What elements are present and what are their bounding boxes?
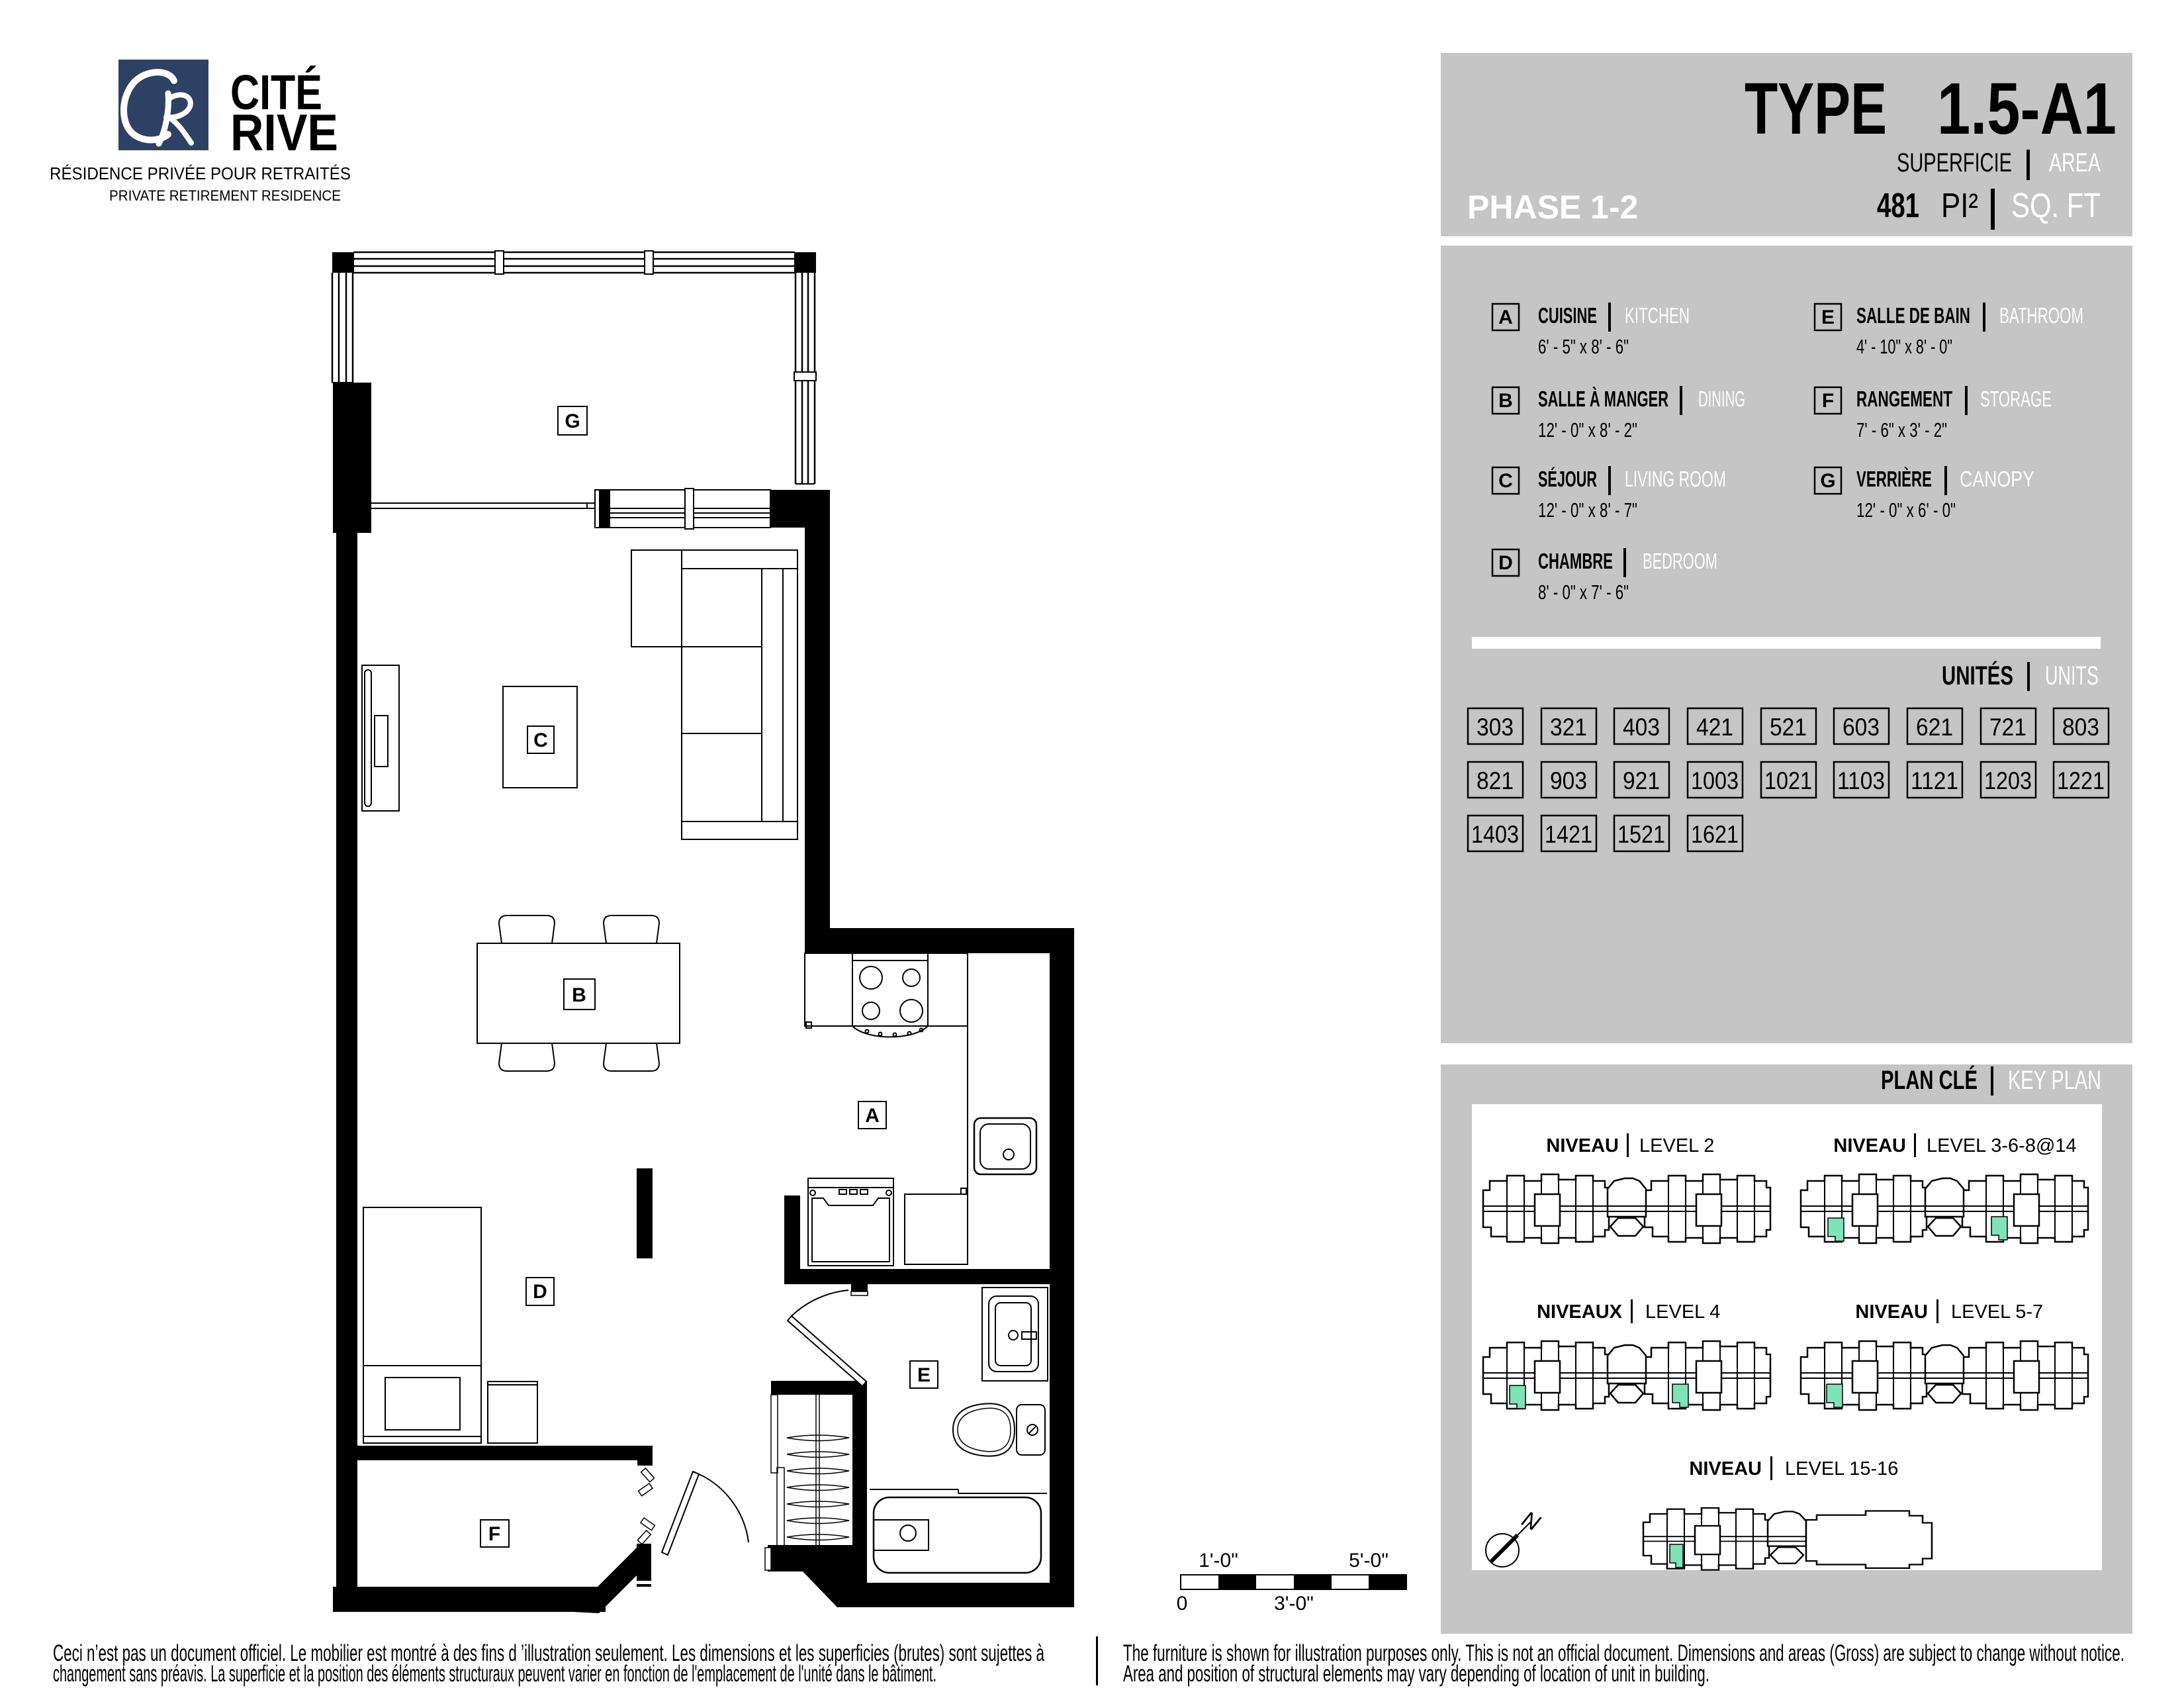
svg-text:E: E xyxy=(1821,306,1835,328)
svg-text:SALLE À MANGER: SALLE À MANGER xyxy=(1538,387,1668,411)
svg-text:A: A xyxy=(865,1105,880,1127)
svg-text:Area and position of structura: Area and position of structural elements… xyxy=(1123,1661,1709,1687)
svg-text:D: D xyxy=(1498,552,1513,574)
svg-text:1021: 1021 xyxy=(1764,767,1812,794)
svg-text:SUPERFICIE: SUPERFICIE xyxy=(1897,148,2012,177)
svg-text:12' - 0" x 6' - 0": 12' - 0" x 6' - 0" xyxy=(1856,498,1956,522)
svg-text:RANGEMENT: RANGEMENT xyxy=(1856,387,1952,411)
svg-text:1003: 1003 xyxy=(1691,767,1739,794)
svg-text:F: F xyxy=(1822,390,1834,412)
svg-text:CUISINE: CUISINE xyxy=(1538,303,1597,328)
svg-text:UNITÉS: UNITÉS xyxy=(1942,661,2013,690)
svg-text:LEVEL 4: LEVEL 4 xyxy=(1645,1301,1720,1323)
svg-text:C: C xyxy=(1498,470,1513,492)
svg-text:603: 603 xyxy=(1843,714,1880,741)
svg-text:SALLE DE BAIN: SALLE DE BAIN xyxy=(1856,303,1970,328)
svg-text:RÉSIDENCE PRIVÉE POUR RETRAITÉ: RÉSIDENCE PRIVÉE POUR RETRAITÉS xyxy=(50,164,351,183)
svg-text:1621: 1621 xyxy=(1691,821,1739,848)
svg-text:STORAGE: STORAGE xyxy=(1980,387,2052,411)
svg-text:3'-0": 3'-0" xyxy=(1274,1593,1314,1615)
svg-text:A: A xyxy=(1498,306,1513,328)
svg-text:1421: 1421 xyxy=(1545,821,1592,848)
svg-text:303: 303 xyxy=(1477,714,1514,741)
svg-text:7' - 6" x 3' - 2": 7' - 6" x 3' - 2" xyxy=(1856,418,1947,442)
svg-text:F: F xyxy=(488,1523,500,1545)
svg-text:1521: 1521 xyxy=(1617,821,1665,848)
svg-text:5'-0": 5'-0" xyxy=(1349,1550,1388,1571)
svg-text:0: 0 xyxy=(1177,1593,1188,1615)
svg-text:NIVEAUX: NIVEAUX xyxy=(1537,1301,1623,1323)
svg-text:DINING: DINING xyxy=(1698,387,1745,411)
svg-text:KEY PLAN: KEY PLAN xyxy=(2008,1066,2101,1095)
svg-text:VERRIÈRE: VERRIÈRE xyxy=(1856,467,1932,491)
svg-text:NIVEAU: NIVEAU xyxy=(1855,1301,1928,1323)
svg-text:CANOPY: CANOPY xyxy=(1960,467,2034,491)
svg-text:521: 521 xyxy=(1770,714,1807,741)
svg-text:903: 903 xyxy=(1550,767,1587,794)
svg-text:UNITS: UNITS xyxy=(2045,661,2099,690)
svg-text:D: D xyxy=(533,1281,547,1303)
svg-text:403: 403 xyxy=(1623,714,1660,741)
svg-text:921: 921 xyxy=(1623,767,1660,794)
svg-text:changement sans préavis. La su: changement sans préavis. La superficie e… xyxy=(53,1661,936,1687)
svg-text:821: 821 xyxy=(1477,767,1514,794)
svg-text:LEVEL 15-16: LEVEL 15-16 xyxy=(1785,1458,1898,1479)
svg-text:LEVEL 5-7: LEVEL 5-7 xyxy=(1951,1301,2043,1323)
svg-text:KITCHEN: KITCHEN xyxy=(1625,303,1690,328)
svg-text:1203: 1203 xyxy=(1984,767,2032,794)
svg-text:1121: 1121 xyxy=(1911,767,1958,794)
svg-text:721: 721 xyxy=(1989,714,2026,741)
svg-text:BEDROOM: BEDROOM xyxy=(1643,549,1717,573)
svg-text:B: B xyxy=(572,984,586,1006)
svg-text:SÉJOUR: SÉJOUR xyxy=(1538,467,1597,491)
svg-text:481: 481 xyxy=(1877,187,1919,225)
svg-text:PLAN CLÉ: PLAN CLÉ xyxy=(1881,1065,1978,1095)
svg-text:1.5-A1: 1.5-A1 xyxy=(1937,68,2116,150)
svg-text:PI²: PI² xyxy=(1941,187,1978,225)
svg-text:421: 421 xyxy=(1696,714,1733,741)
svg-text:1103: 1103 xyxy=(1837,767,1885,794)
svg-text:621: 621 xyxy=(1916,714,1953,741)
svg-text:NIVEAU: NIVEAU xyxy=(1833,1135,1906,1156)
svg-text:PHASE 1-2: PHASE 1-2 xyxy=(1467,189,1638,226)
svg-text:LEVEL 3-6-8@14: LEVEL 3-6-8@14 xyxy=(1927,1135,2077,1156)
svg-text:4' - 10" x 8' - 0": 4' - 10" x 8' - 0" xyxy=(1856,335,1952,358)
svg-text:6' - 5" x 8' - 6": 6' - 5" x 8' - 6" xyxy=(1538,335,1629,358)
svg-text:E: E xyxy=(917,1364,931,1386)
svg-text:12' - 0" x 8' - 2": 12' - 0" x 8' - 2" xyxy=(1538,418,1637,442)
svg-text:NIVEAU: NIVEAU xyxy=(1546,1135,1619,1156)
svg-text:1'-0": 1'-0" xyxy=(1199,1550,1238,1571)
svg-text:SQ. FT: SQ. FT xyxy=(2011,187,2101,225)
svg-text:1221: 1221 xyxy=(2057,767,2105,794)
svg-text:8' - 0" x 7' - 6": 8' - 0" x 7' - 6" xyxy=(1538,581,1629,604)
svg-text:NIVEAU: NIVEAU xyxy=(1689,1458,1762,1479)
svg-text:12' - 0" x 8' - 7": 12' - 0" x 8' - 7" xyxy=(1538,498,1637,522)
svg-text:AREA: AREA xyxy=(2049,148,2101,177)
svg-text:RIVE: RIVE xyxy=(230,103,338,162)
svg-text:B: B xyxy=(1498,390,1513,412)
svg-text:1403: 1403 xyxy=(1471,821,1519,848)
svg-text:C: C xyxy=(533,729,548,751)
svg-text:CHAMBRE: CHAMBRE xyxy=(1538,549,1613,573)
svg-text:803: 803 xyxy=(2062,714,2099,741)
svg-text:LEVEL 2: LEVEL 2 xyxy=(1639,1135,1714,1156)
svg-text:PRIVATE RETIREMENT RESIDENCE: PRIVATE RETIREMENT RESIDENCE xyxy=(109,187,341,204)
svg-text:G: G xyxy=(565,410,580,432)
svg-text:BATHROOM: BATHROOM xyxy=(1999,303,2083,328)
svg-text:TYPE: TYPE xyxy=(1745,68,1887,150)
svg-text:LIVING ROOM: LIVING ROOM xyxy=(1625,467,1726,491)
svg-text:321: 321 xyxy=(1550,714,1587,741)
svg-text:G: G xyxy=(1820,470,1835,492)
